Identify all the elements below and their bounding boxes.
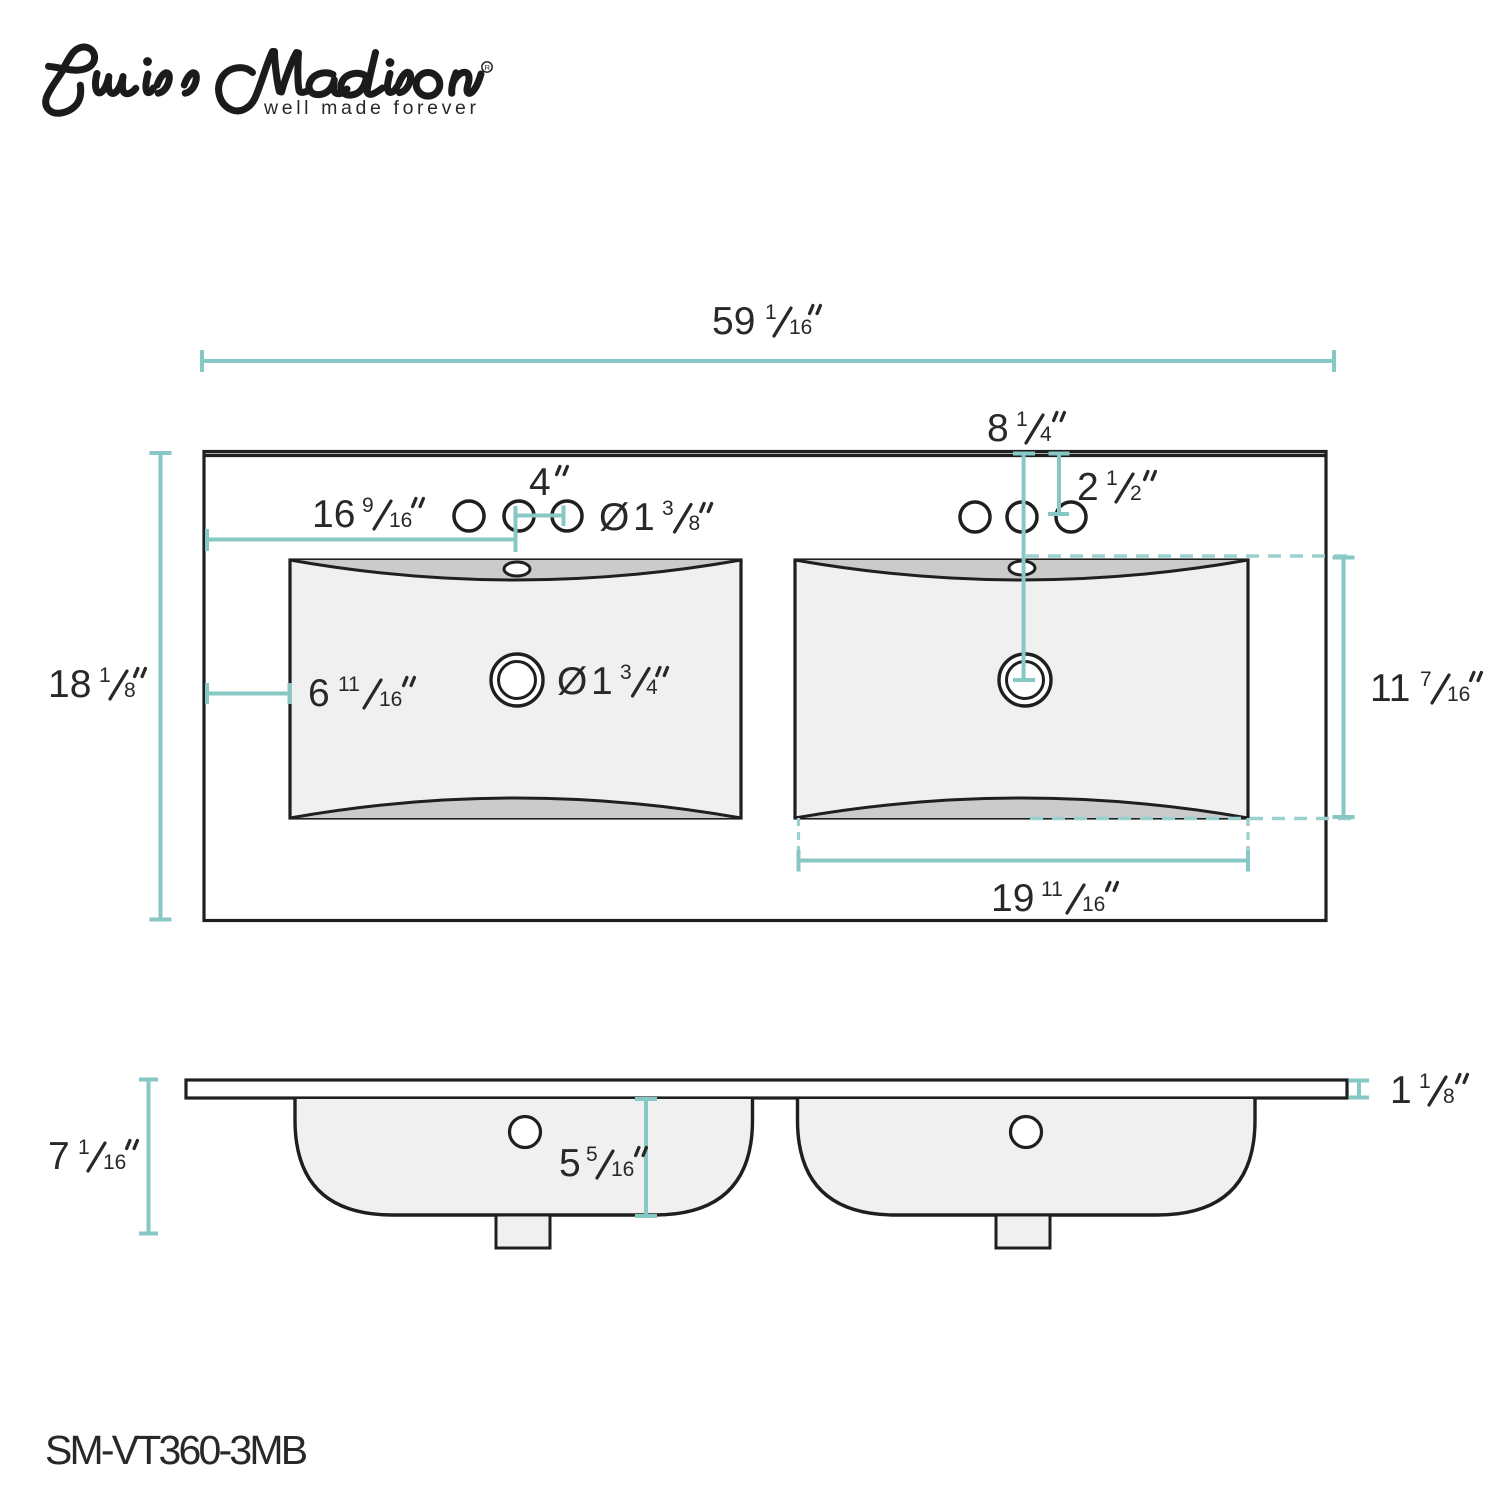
svg-text:7: 7 <box>1420 668 1432 691</box>
svg-text:3: 3 <box>620 661 632 684</box>
svg-text:18: 18 <box>48 663 91 706</box>
svg-text:8: 8 <box>124 679 136 702</box>
svg-text:5: 5 <box>559 1142 581 1185</box>
svg-text:16: 16 <box>103 1151 126 1174</box>
svg-text:1: 1 <box>1390 1069 1412 1112</box>
svg-text:16: 16 <box>379 688 402 711</box>
svg-text:1: 1 <box>633 496 655 539</box>
svg-text:8: 8 <box>987 407 1009 450</box>
svg-text:11: 11 <box>1370 667 1411 710</box>
svg-text:Ø: Ø <box>557 660 587 703</box>
svg-text:16: 16 <box>312 493 355 536</box>
svg-text:2: 2 <box>1130 482 1142 505</box>
svg-text:16: 16 <box>1082 893 1105 916</box>
svg-text:9: 9 <box>362 494 374 517</box>
svg-text:8: 8 <box>689 512 701 535</box>
svg-text:8: 8 <box>1443 1085 1455 1108</box>
svg-text:11: 11 <box>338 673 360 696</box>
svg-text:16: 16 <box>789 316 812 339</box>
svg-text:1: 1 <box>99 664 111 687</box>
svg-text:6: 6 <box>308 672 330 715</box>
svg-text:2: 2 <box>1077 466 1099 509</box>
svg-text:1: 1 <box>1016 408 1028 431</box>
svg-text:well made forever: well made forever <box>263 97 481 119</box>
svg-text:16: 16 <box>611 1158 634 1181</box>
svg-text:1: 1 <box>765 301 777 324</box>
svg-text:16: 16 <box>389 509 412 532</box>
svg-text:1: 1 <box>1419 1070 1431 1093</box>
svg-text:1: 1 <box>1106 467 1118 490</box>
svg-text:11: 11 <box>1041 878 1063 901</box>
svg-text:4: 4 <box>646 676 658 699</box>
svg-text:1: 1 <box>78 1136 90 1159</box>
svg-text:4: 4 <box>529 461 551 504</box>
svg-text:R: R <box>485 63 491 72</box>
svg-text:4: 4 <box>1040 423 1052 446</box>
svg-text:16: 16 <box>1447 683 1470 706</box>
svg-text:59: 59 <box>712 300 755 343</box>
svg-text:5: 5 <box>586 1143 598 1166</box>
svg-text:1: 1 <box>591 660 613 703</box>
svg-text:Ø: Ø <box>599 496 629 539</box>
svg-text:7: 7 <box>48 1135 70 1178</box>
svg-text:SM-VT360-3MB: SM-VT360-3MB <box>45 1427 307 1473</box>
svg-text:19: 19 <box>991 877 1034 920</box>
svg-text:3: 3 <box>662 497 674 520</box>
